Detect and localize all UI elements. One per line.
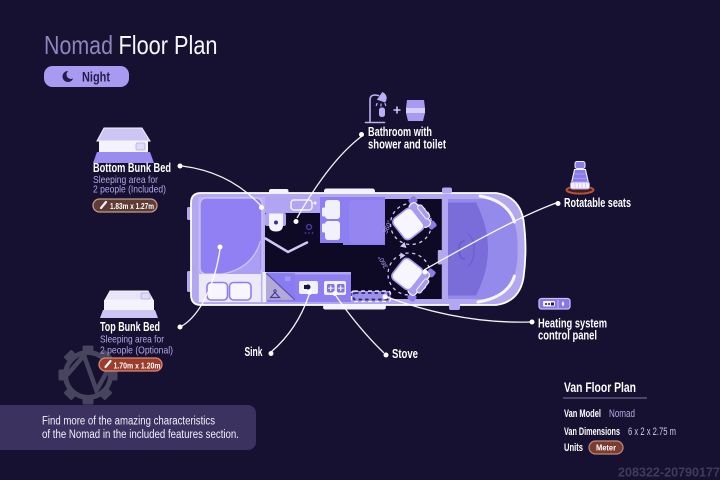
- svg-text:Bottom Bunk Bed: Bottom Bunk Bed: [93, 161, 171, 175]
- svg-text:Nomad: Nomad: [609, 408, 635, 420]
- svg-text:Sink: Sink: [245, 345, 263, 359]
- svg-text:1.83m x 1.27m: 1.83m x 1.27m: [110, 201, 154, 211]
- svg-text:Van Dimensions: Van Dimensions: [564, 426, 620, 438]
- svg-text:Top Bunk Bed: Top Bunk Bed: [100, 320, 160, 334]
- svg-text:Find more of the amazing chara: Find more of the amazing characteristics: [42, 416, 215, 428]
- svg-text:Night: Night: [82, 70, 110, 85]
- svg-text:Stove: Stove: [392, 347, 418, 361]
- svg-text:2 people (Included): 2 people (Included): [93, 184, 166, 196]
- svg-text:1.70m x 1.20m: 1.70m x 1.20m: [114, 361, 161, 371]
- svg-text:2 people (Optional): 2 people (Optional): [100, 345, 173, 357]
- svg-text:shower and toilet: shower and toilet: [368, 138, 447, 152]
- svg-text:Van Floor Plan: Van Floor Plan: [564, 380, 636, 395]
- svg-text:Van Model: Van Model: [564, 408, 601, 420]
- svg-text:NomadFloor Plan: NomadFloor Plan: [44, 30, 218, 60]
- svg-text:Rotatable seats: Rotatable seats: [564, 196, 631, 210]
- svg-text:of the Nomad in the included f: of the Nomad in the included features se…: [42, 429, 239, 441]
- svg-text:208322-20790177: 208322-20790177: [618, 465, 720, 480]
- svg-text:control panel: control panel: [538, 329, 597, 343]
- svg-text:Units: Units: [564, 442, 583, 454]
- svg-text:6 x 2 x 2.75 m: 6 x 2 x 2.75 m: [628, 426, 676, 438]
- svg-text:Meter: Meter: [596, 443, 617, 453]
